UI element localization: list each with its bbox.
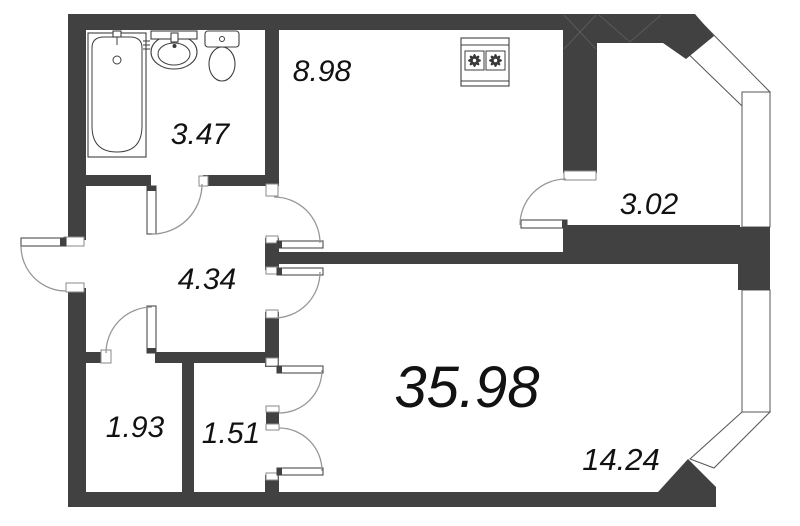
door-hinge <box>277 468 282 475</box>
window-right-lower <box>742 290 770 412</box>
door-hinge <box>147 186 156 191</box>
floor-plan: 8.98 3.47 3.02 4.34 1.93 1.51 35.98 14.2… <box>0 0 800 526</box>
bathtub-icon <box>88 31 150 157</box>
wall-bath-kitchen <box>265 14 279 186</box>
wall-top <box>68 14 563 30</box>
wall-chamfer-bottom <box>658 459 716 507</box>
stove-icon <box>461 38 509 86</box>
jamb <box>266 358 278 366</box>
wall-doubledoor-center <box>266 412 279 424</box>
wall-left-upper <box>68 14 86 240</box>
jamb <box>266 406 279 412</box>
room-label-kitchen: 8.98 <box>293 55 352 88</box>
double-door-upper-arc <box>279 370 322 413</box>
room-label-bathroom: 3.47 <box>171 118 231 151</box>
living-door-leaf <box>277 268 323 275</box>
wall-bay-middle <box>738 227 770 290</box>
jamb <box>266 267 278 274</box>
door-hinge <box>277 268 282 275</box>
door-hinge <box>147 348 156 353</box>
window-bottom-diagonal <box>690 412 770 468</box>
jamb <box>199 176 208 186</box>
doors <box>21 179 567 475</box>
wall-kitchen-living <box>279 252 565 264</box>
jamb <box>66 283 84 292</box>
room-label-total-area: 35.98 <box>394 355 539 420</box>
kitchen-door-arc <box>274 197 320 243</box>
jamb <box>266 236 278 243</box>
room-label-hallway: 4.34 <box>178 263 236 296</box>
jamb <box>266 184 278 196</box>
bathroom-door-leaf <box>147 186 156 234</box>
room-label-balcony: 3.02 <box>620 188 679 221</box>
double-door-lower-arc <box>279 428 322 471</box>
window-right-upper <box>742 92 770 227</box>
door-hinge <box>277 366 282 373</box>
door-hinge <box>60 238 66 246</box>
wall-closet-divider <box>182 357 194 492</box>
bathroom-door-arc <box>152 184 202 234</box>
wall-top-right <box>597 14 663 43</box>
entrance-door-arc <box>21 246 66 291</box>
wall-closet-top-right <box>155 352 265 363</box>
wall-balcony-living <box>563 225 740 264</box>
jamb <box>266 310 278 318</box>
jamb <box>64 237 84 246</box>
wall-bottom <box>68 492 660 507</box>
floor-plan-canvas: 8.98 3.47 3.02 4.34 1.93 1.51 35.98 14.2… <box>0 0 800 526</box>
toilet-icon <box>205 26 239 81</box>
jamb <box>266 473 278 480</box>
closet-door-leaf <box>147 306 156 353</box>
balcony-door-leaf <box>521 220 567 228</box>
double-door-lower-leaf <box>277 468 323 475</box>
wall-bathroom-bottom-right <box>203 175 265 186</box>
entrance-door-leaf <box>21 238 66 246</box>
double-door-upper-leaf <box>277 366 323 373</box>
door-hinge <box>277 241 282 248</box>
wall-left-lower <box>68 288 86 507</box>
room-label-living-room: 14.24 <box>582 442 660 477</box>
living-door-arc <box>274 272 320 318</box>
balcony-door-arc <box>520 179 566 225</box>
fixtures <box>88 26 509 157</box>
wall-kitchen-balcony <box>563 14 597 173</box>
room-label-storage-right: 1.51 <box>202 417 260 450</box>
kitchen-door-leaf <box>277 241 323 248</box>
sink-icon <box>151 31 197 69</box>
jamb <box>564 171 596 180</box>
jamb <box>266 424 279 430</box>
closet-door-arc <box>106 307 152 353</box>
door-hinge <box>562 220 567 228</box>
walls <box>68 14 770 507</box>
wall-bathroom-bottom-left <box>86 175 151 186</box>
room-label-storage-left: 1.93 <box>106 411 165 444</box>
